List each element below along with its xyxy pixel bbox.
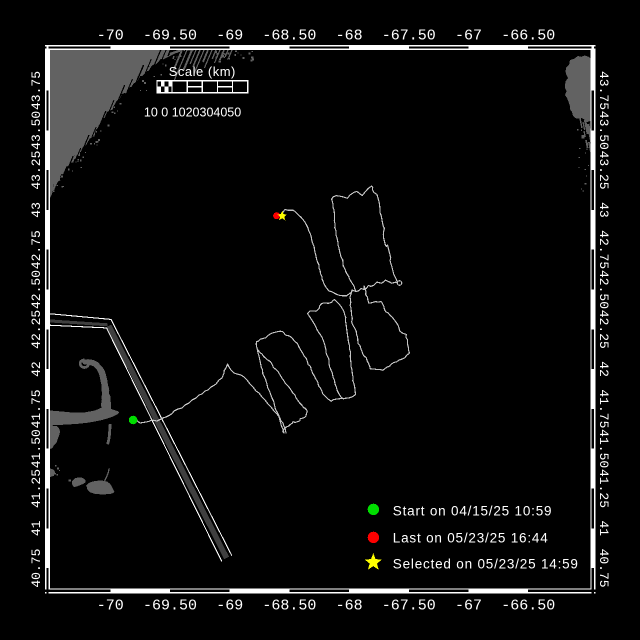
svg-text:41.50: 41.50 bbox=[596, 429, 611, 468]
svg-text:41.75: 41.75 bbox=[29, 389, 44, 428]
svg-text:-67: -67 bbox=[455, 28, 482, 45]
svg-text:43: 43 bbox=[596, 202, 611, 218]
svg-text:-69.50: -69.50 bbox=[143, 597, 197, 614]
svg-text:-69: -69 bbox=[216, 597, 243, 614]
svg-text:10 0 1020304050: 10 0 1020304050 bbox=[144, 106, 241, 120]
svg-text:Last on 05/23/25 16:44: Last on 05/23/25 16:44 bbox=[393, 531, 549, 546]
svg-text:-68.50: -68.50 bbox=[262, 597, 316, 614]
svg-text:43.50: 43.50 bbox=[596, 111, 611, 150]
svg-text:-66.50: -66.50 bbox=[501, 597, 555, 614]
svg-text:41.25: 41.25 bbox=[596, 469, 611, 508]
svg-text:42.50: 42.50 bbox=[29, 270, 44, 309]
svg-text:42: 42 bbox=[29, 361, 44, 377]
svg-text:43: 43 bbox=[29, 202, 44, 218]
svg-text:42: 42 bbox=[596, 361, 611, 377]
svg-text:43.25: 43.25 bbox=[596, 151, 611, 190]
svg-text:43.50: 43.50 bbox=[29, 111, 44, 150]
svg-text:41.50: 41.50 bbox=[29, 429, 44, 468]
svg-text:-70: -70 bbox=[97, 597, 124, 614]
svg-text:41: 41 bbox=[29, 520, 44, 536]
svg-text:42.75: 42.75 bbox=[29, 230, 44, 269]
svg-text:-69.50: -69.50 bbox=[143, 28, 197, 45]
svg-text:41.25: 41.25 bbox=[29, 469, 44, 508]
svg-text:Selected on 05/23/25 14:59: Selected on 05/23/25 14:59 bbox=[393, 557, 579, 572]
svg-text:42.25: 42.25 bbox=[29, 310, 44, 349]
svg-text:Scale (km): Scale (km) bbox=[169, 64, 236, 79]
svg-text:-68.50: -68.50 bbox=[262, 28, 316, 45]
svg-text:42.75: 42.75 bbox=[596, 230, 611, 269]
svg-text:-70: -70 bbox=[97, 28, 124, 45]
svg-text:43.75: 43.75 bbox=[596, 71, 611, 110]
svg-text:40.75: 40.75 bbox=[29, 549, 44, 588]
svg-text:42.25: 42.25 bbox=[596, 310, 611, 349]
svg-text:-68: -68 bbox=[336, 597, 363, 614]
svg-text:-69: -69 bbox=[216, 28, 243, 45]
svg-text:43.25: 43.25 bbox=[29, 151, 44, 190]
svg-text:40.75: 40.75 bbox=[596, 549, 611, 588]
svg-text:-68: -68 bbox=[336, 28, 363, 45]
svg-text:42.50: 42.50 bbox=[596, 270, 611, 309]
svg-text:-66.50: -66.50 bbox=[501, 28, 555, 45]
svg-text:41: 41 bbox=[596, 520, 611, 536]
svg-text:-67.50: -67.50 bbox=[382, 28, 436, 45]
svg-text:43.75: 43.75 bbox=[29, 71, 44, 110]
svg-text:41.75: 41.75 bbox=[596, 389, 611, 428]
svg-text:Start on 04/15/25 10:59: Start on 04/15/25 10:59 bbox=[393, 503, 553, 518]
svg-text:-67.50: -67.50 bbox=[382, 597, 436, 614]
svg-text:-67: -67 bbox=[455, 597, 482, 614]
